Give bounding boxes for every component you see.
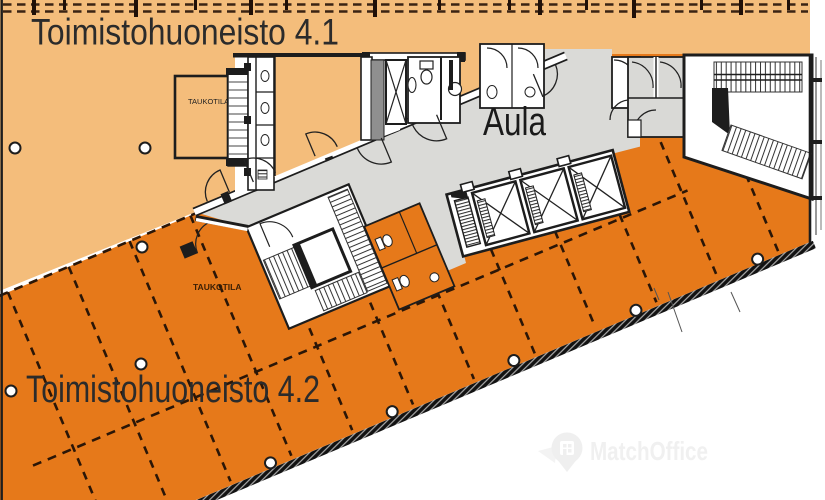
svg-text:Toimistohuoneisto 4.1: Toimistohuoneisto 4.1 (31, 12, 339, 53)
svg-text:TAUKOTILA: TAUKOTILA (193, 282, 241, 292)
svg-text:MatchOffice: MatchOffice (590, 436, 708, 466)
svg-text:Aula: Aula (483, 100, 547, 144)
svg-text:Toimistohuoneisto 4.2: Toimistohuoneisto 4.2 (26, 369, 320, 411)
svg-text:TAUKOTILA: TAUKOTILA (188, 97, 229, 106)
